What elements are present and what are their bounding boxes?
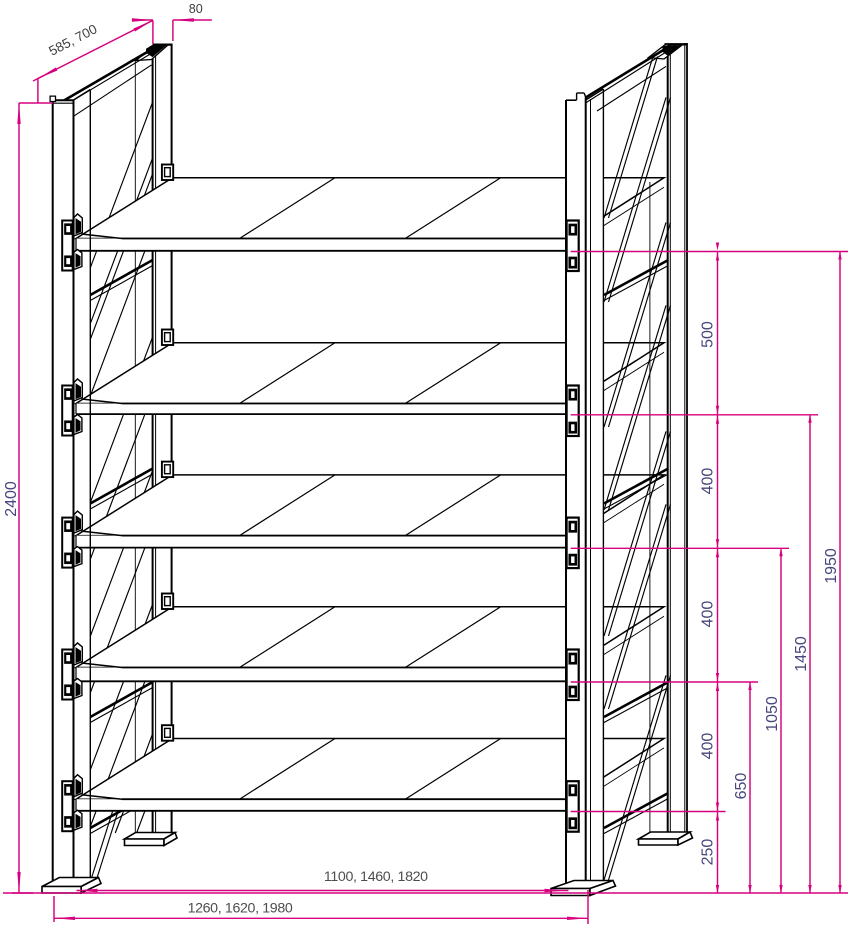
svg-text:1260, 1620, 1980: 1260, 1620, 1980: [188, 901, 293, 917]
svg-text:2400: 2400: [3, 481, 20, 517]
svg-text:400: 400: [700, 733, 717, 760]
svg-text:80: 80: [189, 2, 203, 16]
svg-text:400: 400: [700, 601, 717, 628]
svg-text:1450: 1450: [793, 636, 810, 672]
svg-text:650: 650: [733, 773, 750, 800]
svg-text:1950: 1950: [823, 548, 840, 584]
svg-text:1050: 1050: [764, 696, 781, 732]
svg-text:1100, 1460, 1820: 1100, 1460, 1820: [324, 869, 428, 885]
svg-text:250: 250: [700, 839, 717, 866]
svg-text:500: 500: [700, 321, 717, 348]
svg-text:400: 400: [700, 468, 717, 495]
